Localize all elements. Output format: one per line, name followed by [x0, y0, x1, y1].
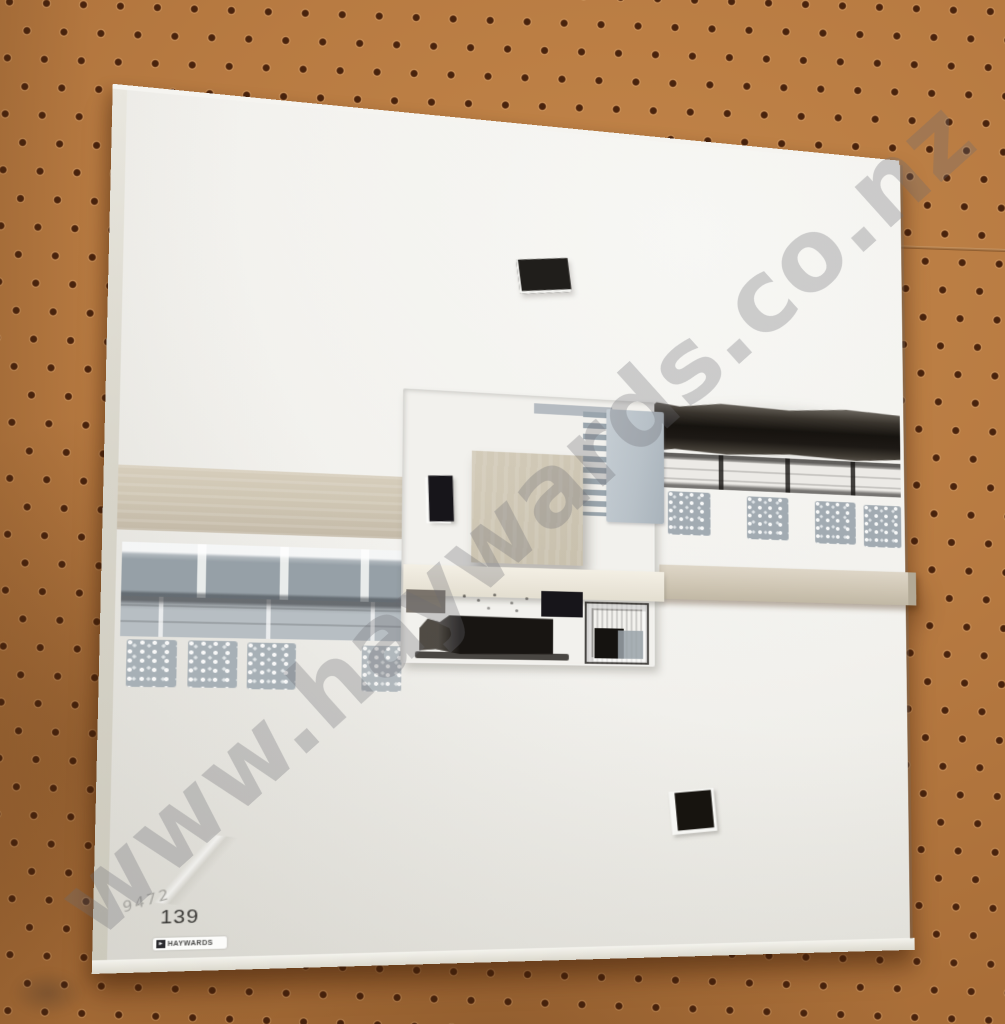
stamped-square-left-3: [247, 642, 296, 689]
collage-grey-block: [406, 589, 445, 613]
collage-black-smear: [415, 651, 569, 660]
canvas-front-face: 9472 139 ▸ HAYWARDS: [107, 90, 910, 960]
collage-scribbled-box: [585, 602, 649, 665]
artwork-shadow-wrapper: 9472 139 ▸ HAYWARDS: [0, 0, 1005, 1024]
stamped-square-right-4: [864, 505, 902, 548]
collage-black-block: [541, 591, 583, 617]
left-beige-band: [117, 465, 432, 541]
left-grey-brick-row-lower: [120, 596, 431, 642]
left-grey-brick-row-upper: [121, 542, 431, 604]
stamped-square-right-2: [747, 496, 789, 540]
scribbled-box-grey-stamp: [618, 630, 643, 659]
bottom-black-square: [674, 790, 714, 831]
central-raised-panel: [400, 388, 654, 666]
top-black-rectangle: [516, 258, 572, 294]
photo-scene: 9472 139 ▸ HAYWARDS www.haywards.co.nz: [0, 0, 1005, 1024]
bottom-black-square-mount: [669, 788, 718, 835]
stamped-square-left-4: [361, 646, 401, 692]
stamped-square-right-1: [668, 491, 711, 536]
stamped-square-right-3: [815, 501, 856, 545]
stamped-square-left-2: [187, 640, 237, 688]
artwork-canvas: 9472 139 ▸ HAYWARDS: [107, 90, 910, 960]
black-chip: [428, 476, 454, 522]
slat-end-cap: [908, 572, 916, 605]
stamped-square-left-1: [126, 639, 177, 687]
collage-speckles: [463, 595, 466, 598]
slate-blue-slab: [606, 409, 664, 524]
protruding-beige-slat: [659, 565, 916, 606]
lot-number-label: 139: [160, 906, 199, 929]
collage-black-bar: [419, 615, 553, 656]
auction-house-sticker: ▸ HAYWARDS: [153, 936, 227, 950]
beige-square-relief: [471, 451, 583, 566]
haywards-logo-text: HAYWARDS: [168, 939, 214, 947]
haywards-logo-icon: ▸: [156, 940, 165, 948]
